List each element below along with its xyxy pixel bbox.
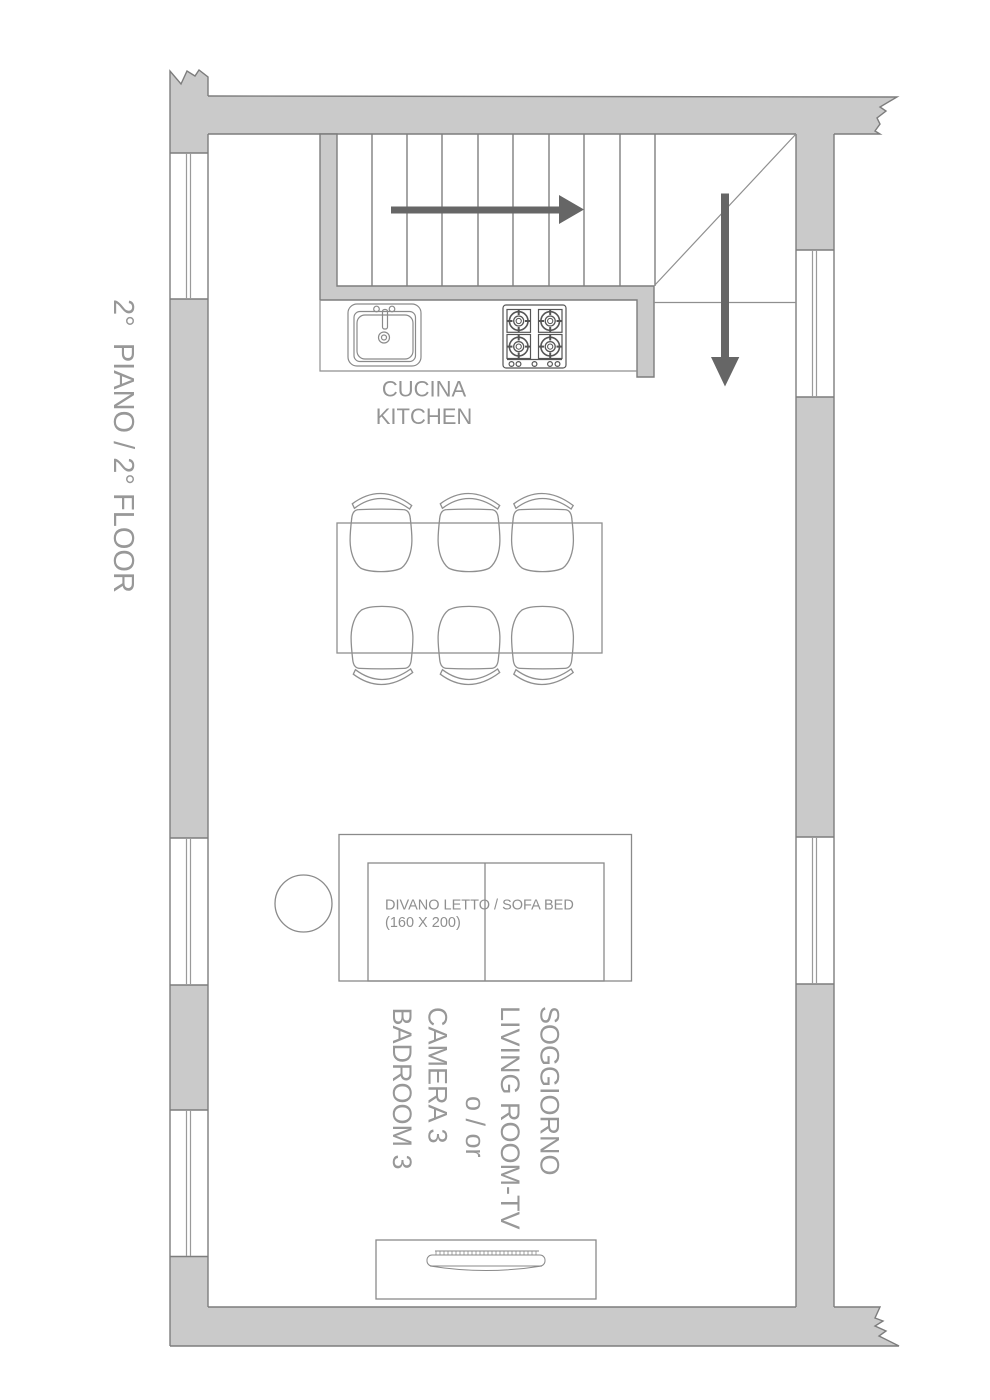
svg-text:SOGGIORNO: SOGGIORNO <box>535 1006 565 1176</box>
svg-text:LIVING ROOM-TV: LIVING ROOM-TV <box>495 1006 525 1230</box>
svg-text:BADROOM 3: BADROOM 3 <box>387 1008 417 1170</box>
svg-text:CUCINA: CUCINA <box>382 377 467 402</box>
svg-text:(160 X 200): (160 X 200) <box>385 915 461 931</box>
svg-text:KITCHEN: KITCHEN <box>376 404 473 429</box>
svg-text:2° PIANO / 2° FLOOR: 2° PIANO / 2° FLOOR <box>107 299 139 593</box>
svg-text:CAMERA 3: CAMERA 3 <box>423 1007 453 1144</box>
svg-text:o / or: o / or <box>460 1096 490 1158</box>
svg-text:DIVANO LETTO / SOFA BED: DIVANO LETTO / SOFA BED <box>385 898 574 914</box>
